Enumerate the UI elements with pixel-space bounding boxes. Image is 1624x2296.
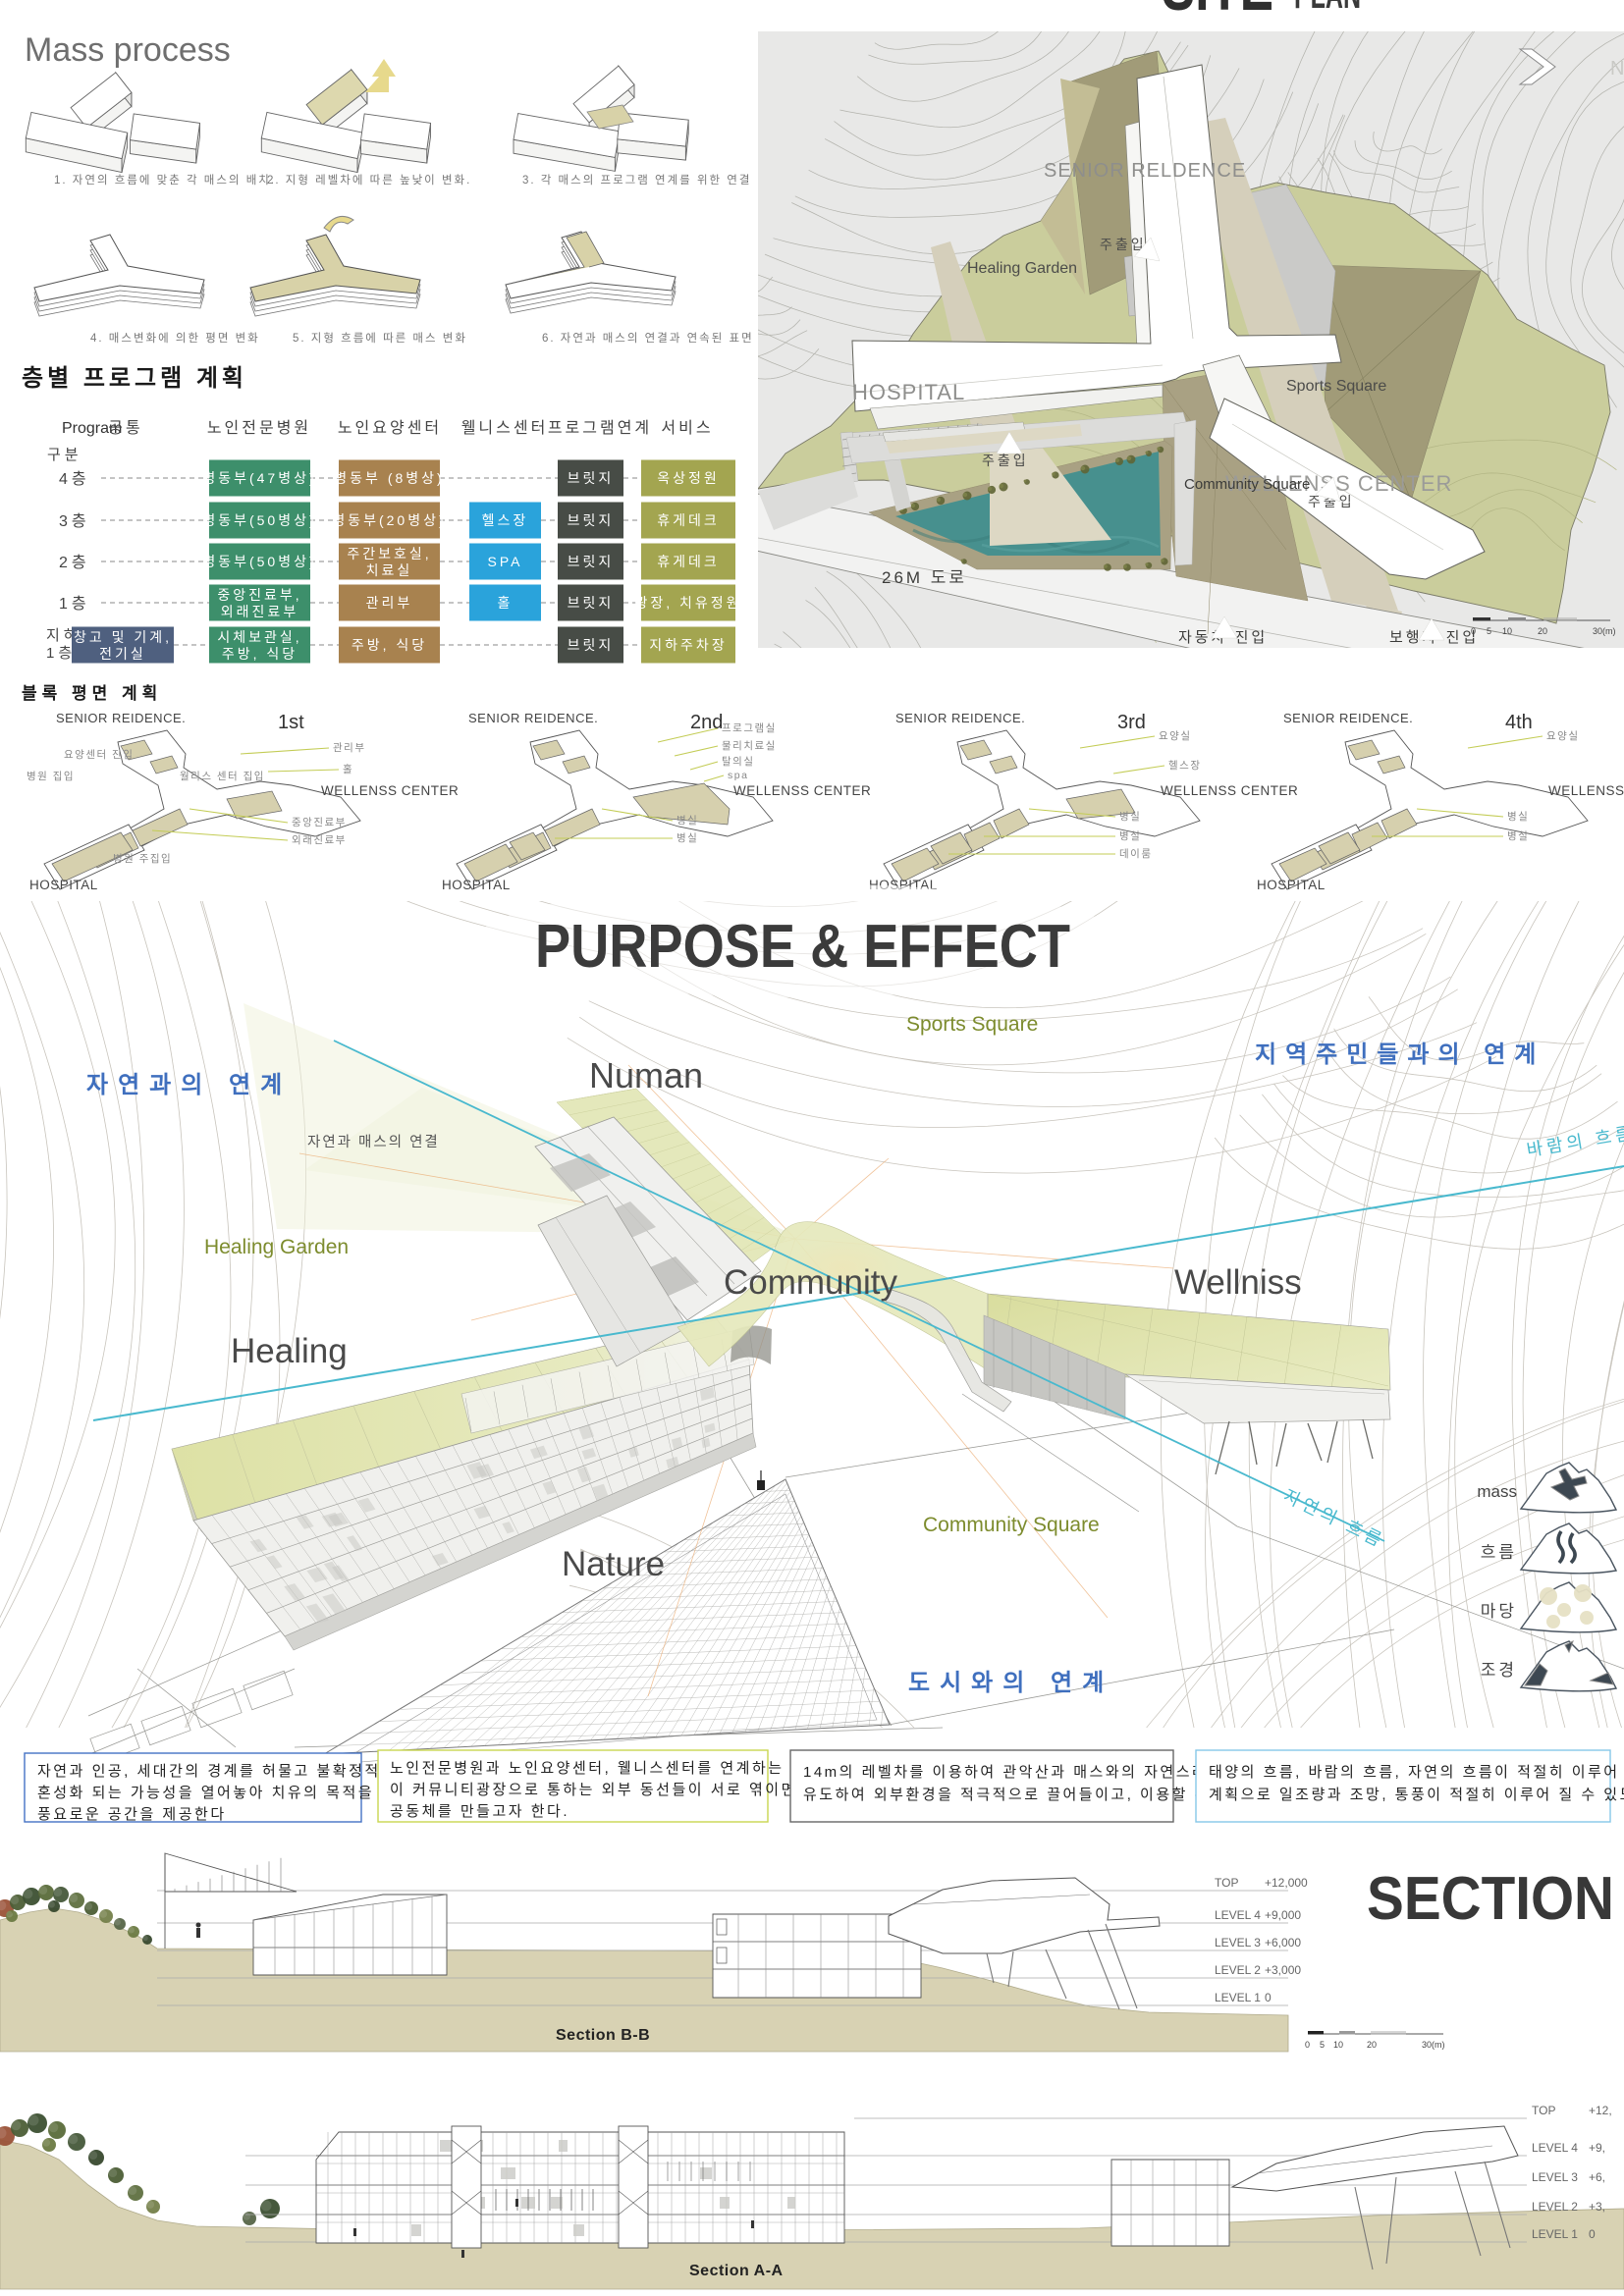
svg-text:SENIOR RELDENCE: SENIOR RELDENCE: [1044, 160, 1246, 182]
svg-text:spa: spa: [728, 770, 748, 781]
svg-text:TOP: TOP: [1532, 2104, 1555, 2117]
svg-text:5: 5: [1320, 2040, 1325, 2050]
svg-text:중앙진료부: 중앙진료부: [292, 817, 347, 828]
svg-text:+6,: +6,: [1589, 2170, 1605, 2184]
svg-text:블록 평면 계획: 블록 평면 계획: [22, 684, 162, 703]
svg-text:Section A-A: Section A-A: [689, 2263, 784, 2279]
svg-text:도시와의 연계: 도시와의 연계: [908, 1670, 1113, 1696]
svg-text:브릿지: 브릿지: [568, 470, 615, 486]
svg-text:계획으로 일조량과 조망, 통풍이 적절히 이루어 질 수: 계획으로 일조량과 조망, 통풍이 적절히 이루어 질 수 있도록 계획 한다.: [1209, 1787, 1624, 1803]
svg-text:SECTION: SECTION: [1367, 1865, 1614, 1933]
svg-text:요양실: 요양실: [1546, 730, 1579, 742]
svg-text:병동부(50병상): 병동부(50병상): [202, 512, 316, 528]
svg-text:외래진료부: 외래진료부: [221, 604, 298, 619]
svg-text:LEVEL 3: LEVEL 3: [1215, 1936, 1261, 1949]
svg-text:6. 자연과 매스의 연결과 연속된 표면: 6. 자연과 매스의 연결과 연속된 표면: [542, 332, 754, 345]
svg-text:HOSPITAL: HOSPITAL: [29, 878, 98, 892]
svg-text:병동부(47병상): 병동부(47병상): [202, 470, 316, 486]
svg-text:5: 5: [1487, 626, 1491, 636]
svg-text:+9,: +9,: [1589, 2141, 1605, 2155]
svg-text:Community Square: Community Square: [923, 1514, 1100, 1536]
svg-text:주출입: 주출입: [1100, 237, 1147, 252]
svg-text:전기실: 전기실: [99, 646, 146, 662]
svg-text:30(m): 30(m): [1422, 2040, 1445, 2050]
svg-text:웰니스센터: 웰니스센터: [461, 419, 549, 437]
svg-text:헬스장: 헬스장: [1168, 760, 1201, 772]
svg-text:LEVEL 1: LEVEL 1: [1215, 1991, 1261, 2004]
svg-text:2nd: 2nd: [690, 712, 723, 733]
svg-text:주방, 식당: 주방, 식당: [222, 646, 298, 662]
svg-text:병원 주집입: 병원 주집입: [113, 852, 172, 865]
svg-text:서비스: 서비스: [661, 419, 713, 437]
svg-text:LEVEL 4: LEVEL 4: [1215, 1908, 1261, 1922]
svg-text:LEVEL 2: LEVEL 2: [1215, 1963, 1261, 1977]
svg-text:홀: 홀: [343, 763, 353, 775]
svg-text:창고 및 기계,: 창고 및 기계,: [74, 629, 172, 645]
svg-text:WELLENSS CENTER: WELLENSS CENTER: [733, 783, 871, 798]
svg-text:TOP: TOP: [1215, 1876, 1238, 1890]
svg-text:병동부 (8병상): 병동부 (8병상): [334, 470, 444, 486]
svg-text:WELLENSS CENTER: WELLENSS CENTER: [1161, 783, 1298, 798]
svg-text:1층: 1층: [46, 645, 76, 662]
svg-text:병실: 병실: [1119, 830, 1141, 842]
svg-text:LEVEL 1: LEVEL 1: [1532, 2227, 1578, 2241]
svg-text:3층: 3층: [59, 512, 90, 530]
svg-text:+12,: +12,: [1589, 2104, 1612, 2117]
svg-text:LEVEL 4: LEVEL 4: [1532, 2141, 1578, 2155]
svg-text:Healing Garden: Healing Garden: [204, 1236, 349, 1258]
svg-text:30(m): 30(m): [1593, 626, 1616, 636]
svg-text:26M 도로: 26M 도로: [882, 568, 967, 587]
svg-text:+9,000: +9,000: [1265, 1908, 1301, 1922]
svg-text:10: 10: [1502, 626, 1512, 636]
svg-text:병실: 병실: [677, 832, 698, 844]
svg-text:관리부: 관리부: [333, 742, 365, 754]
svg-text:홀: 홀: [498, 595, 514, 611]
svg-text:HOSPITAL: HOSPITAL: [852, 380, 965, 404]
svg-text:구분: 구분: [47, 447, 82, 463]
svg-text:공통: 공통: [108, 419, 142, 437]
svg-text:Healing Garden: Healing Garden: [967, 260, 1077, 277]
svg-text:2. 지형 레벨차에 따른 높낮이 변화.: 2. 지형 레벨차에 따른 높낮이 변화.: [267, 174, 471, 187]
svg-text:휴게데크: 휴게데크: [657, 512, 720, 528]
svg-text:4. 매스변화에 의한 평면 변화: 4. 매스변화에 의한 평면 변화: [90, 332, 260, 345]
svg-text:병실: 병실: [677, 815, 698, 827]
svg-text:병실: 병실: [1507, 830, 1529, 842]
svg-text:조경: 조경: [1481, 1661, 1517, 1680]
svg-text:브릿지: 브릿지: [568, 595, 615, 611]
svg-text:20: 20: [1538, 626, 1547, 636]
svg-text:N: N: [1610, 58, 1624, 80]
svg-text:5. 지형 흐름에 따른 매스 변화: 5. 지형 흐름에 따른 매스 변화: [293, 332, 467, 345]
svg-text:병원 집입: 병원 집입: [27, 770, 75, 782]
svg-text:옥상정원: 옥상정원: [657, 470, 720, 486]
svg-text:WELLENSS CENTER: WELLENSS CENTER: [321, 783, 459, 798]
svg-text:PURPOSE & EFFECT: PURPOSE & EFFECT: [535, 913, 1070, 981]
svg-text:병동부(50병상): 병동부(50병상): [202, 554, 316, 569]
svg-text:노인요양센터: 노인요양센터: [338, 419, 442, 437]
svg-text:+3,000: +3,000: [1265, 1963, 1301, 1977]
svg-text:0: 0: [1265, 1991, 1272, 2004]
svg-text:주간보호실,: 주간보호실,: [347, 546, 431, 561]
svg-text:LEVEL 2: LEVEL 2: [1532, 2200, 1578, 2214]
svg-text:브릿지: 브릿지: [568, 637, 615, 653]
svg-text:시체보관실,: 시체보관실,: [217, 629, 301, 645]
svg-text:0: 0: [1471, 626, 1476, 636]
svg-text:2층: 2층: [59, 554, 90, 571]
svg-text:관리부: 관리부: [366, 595, 413, 611]
svg-text:Healing: Healing: [231, 1332, 348, 1370]
svg-text:Sports Square: Sports Square: [906, 1013, 1038, 1036]
svg-text:Community Square: Community Square: [1184, 476, 1310, 493]
svg-text:10: 10: [1333, 2040, 1343, 2050]
svg-text:외래진료부: 외래진료부: [292, 834, 347, 846]
svg-text:병실: 병실: [1507, 811, 1529, 823]
svg-text:월리스 센터 집입: 월리스 센터 집입: [180, 770, 265, 782]
svg-text:휴게데크: 휴게데크: [657, 554, 720, 569]
svg-text:지역주민들과의 연계: 지역주민들과의 연계: [1255, 1041, 1544, 1068]
svg-text:Sports Square: Sports Square: [1286, 378, 1386, 395]
svg-text:요양실: 요양실: [1159, 730, 1191, 742]
svg-text:프로그램연계: 프로그램연계: [548, 419, 652, 437]
svg-text:흐름: 흐름: [1481, 1543, 1517, 1562]
svg-text:HOSPITAL: HOSPITAL: [1257, 878, 1326, 892]
svg-text:치료실: 치료실: [366, 562, 413, 578]
svg-text:병실: 병실: [1119, 811, 1141, 823]
svg-text:3rd: 3rd: [1117, 712, 1146, 733]
svg-text:1층: 1층: [59, 595, 90, 613]
svg-text:자연과 매스의 연결: 자연과 매스의 연결: [307, 1134, 440, 1150]
svg-text:LEVEL 3: LEVEL 3: [1532, 2170, 1578, 2184]
svg-text:SPA: SPA: [488, 554, 523, 569]
svg-text:1st: 1st: [278, 712, 304, 733]
svg-text:데이룸: 데이룸: [1119, 848, 1152, 860]
svg-text:브릿지: 브릿지: [568, 512, 615, 528]
svg-text:프로그램실: 프로그램실: [722, 722, 777, 734]
svg-text:주출입: 주출입: [982, 453, 1029, 468]
svg-text:SENIOR REIDENCE.: SENIOR REIDENCE.: [895, 711, 1025, 725]
svg-text:SENIOR REIDENCE.: SENIOR REIDENCE.: [56, 711, 186, 725]
svg-text:20: 20: [1367, 2040, 1377, 2050]
svg-text:주방, 식당: 주방, 식당: [352, 637, 427, 653]
svg-text:SENIOR REIDENCE.: SENIOR REIDENCE.: [468, 711, 598, 725]
svg-text:마당: 마당: [1481, 1602, 1517, 1621]
svg-text:광장, 치유정원: 광장, 치유정원: [634, 595, 741, 611]
svg-text:물리치료실: 물리치료실: [722, 740, 777, 752]
svg-text:+12,000: +12,000: [1265, 1876, 1308, 1890]
svg-text:층별 프로그램 계획: 층별 프로그램 계획: [22, 365, 247, 392]
svg-text:WELLENSS CENTER: WELLENSS CENTER: [1548, 783, 1624, 798]
svg-text:3. 각 매스의 프로그램 연계를 위한 연결: 3. 각 매스의 프로그램 연계를 위한 연결: [522, 174, 751, 187]
svg-text:HOSPITAL: HOSPITAL: [442, 878, 511, 892]
svg-text:Wellniss: Wellniss: [1174, 1263, 1302, 1302]
svg-text:풍요로운 공간을 제공한다: 풍요로운 공간을 제공한다: [37, 1806, 227, 1823]
svg-text:+3,: +3,: [1589, 2200, 1605, 2214]
svg-text:Section B-B: Section B-B: [556, 2027, 650, 2044]
svg-text:4층: 4층: [59, 470, 90, 488]
svg-text:노인전문병원: 노인전문병원: [207, 419, 311, 437]
svg-text:Mass process: Mass process: [25, 31, 231, 69]
svg-text:0: 0: [1589, 2227, 1596, 2241]
svg-text:Numan: Numan: [589, 1055, 703, 1095]
svg-text:지하주차장: 지하주차장: [649, 637, 727, 653]
svg-text:공동체를 만들고자 한다.: 공동체를 만들고자 한다.: [390, 1803, 569, 1820]
svg-text:Community: Community: [724, 1263, 897, 1302]
svg-text:SITE: SITE: [1162, 0, 1273, 26]
svg-text:브릿지: 브릿지: [568, 554, 615, 569]
svg-text:1. 자연의 흐름에 맞춘 각 매스의 배치.: 1. 자연의 흐름에 맞춘 각 매스의 배치.: [54, 174, 276, 187]
svg-text:Nature: Nature: [562, 1545, 665, 1583]
svg-text:SENIOR REIDENCE.: SENIOR REIDENCE.: [1283, 711, 1413, 725]
svg-text:자연과의 연계: 자연과의 연계: [86, 1072, 292, 1098]
svg-text:mass: mass: [1477, 1482, 1517, 1501]
svg-text:요양센터 진입: 요양센터 진입: [64, 748, 134, 761]
svg-text:+6,000: +6,000: [1265, 1936, 1301, 1949]
svg-text:병동부(20병상): 병동부(20병상): [332, 512, 446, 528]
svg-text:4th: 4th: [1505, 712, 1533, 733]
svg-text:태양의 흐름, 바람의 흐름, 자연의 흐름이 적절히 이루: 태양의 흐름, 바람의 흐름, 자연의 흐름이 적절히 이루어 질 수 있는 배…: [1209, 1764, 1624, 1781]
svg-text:PLAN: PLAN: [1294, 0, 1361, 17]
svg-text:0: 0: [1305, 2040, 1310, 2050]
svg-text:헬스장: 헬스장: [482, 512, 529, 528]
svg-text:탈의실: 탈의실: [722, 755, 754, 768]
svg-text:중앙진료부,: 중앙진료부,: [217, 587, 301, 603]
